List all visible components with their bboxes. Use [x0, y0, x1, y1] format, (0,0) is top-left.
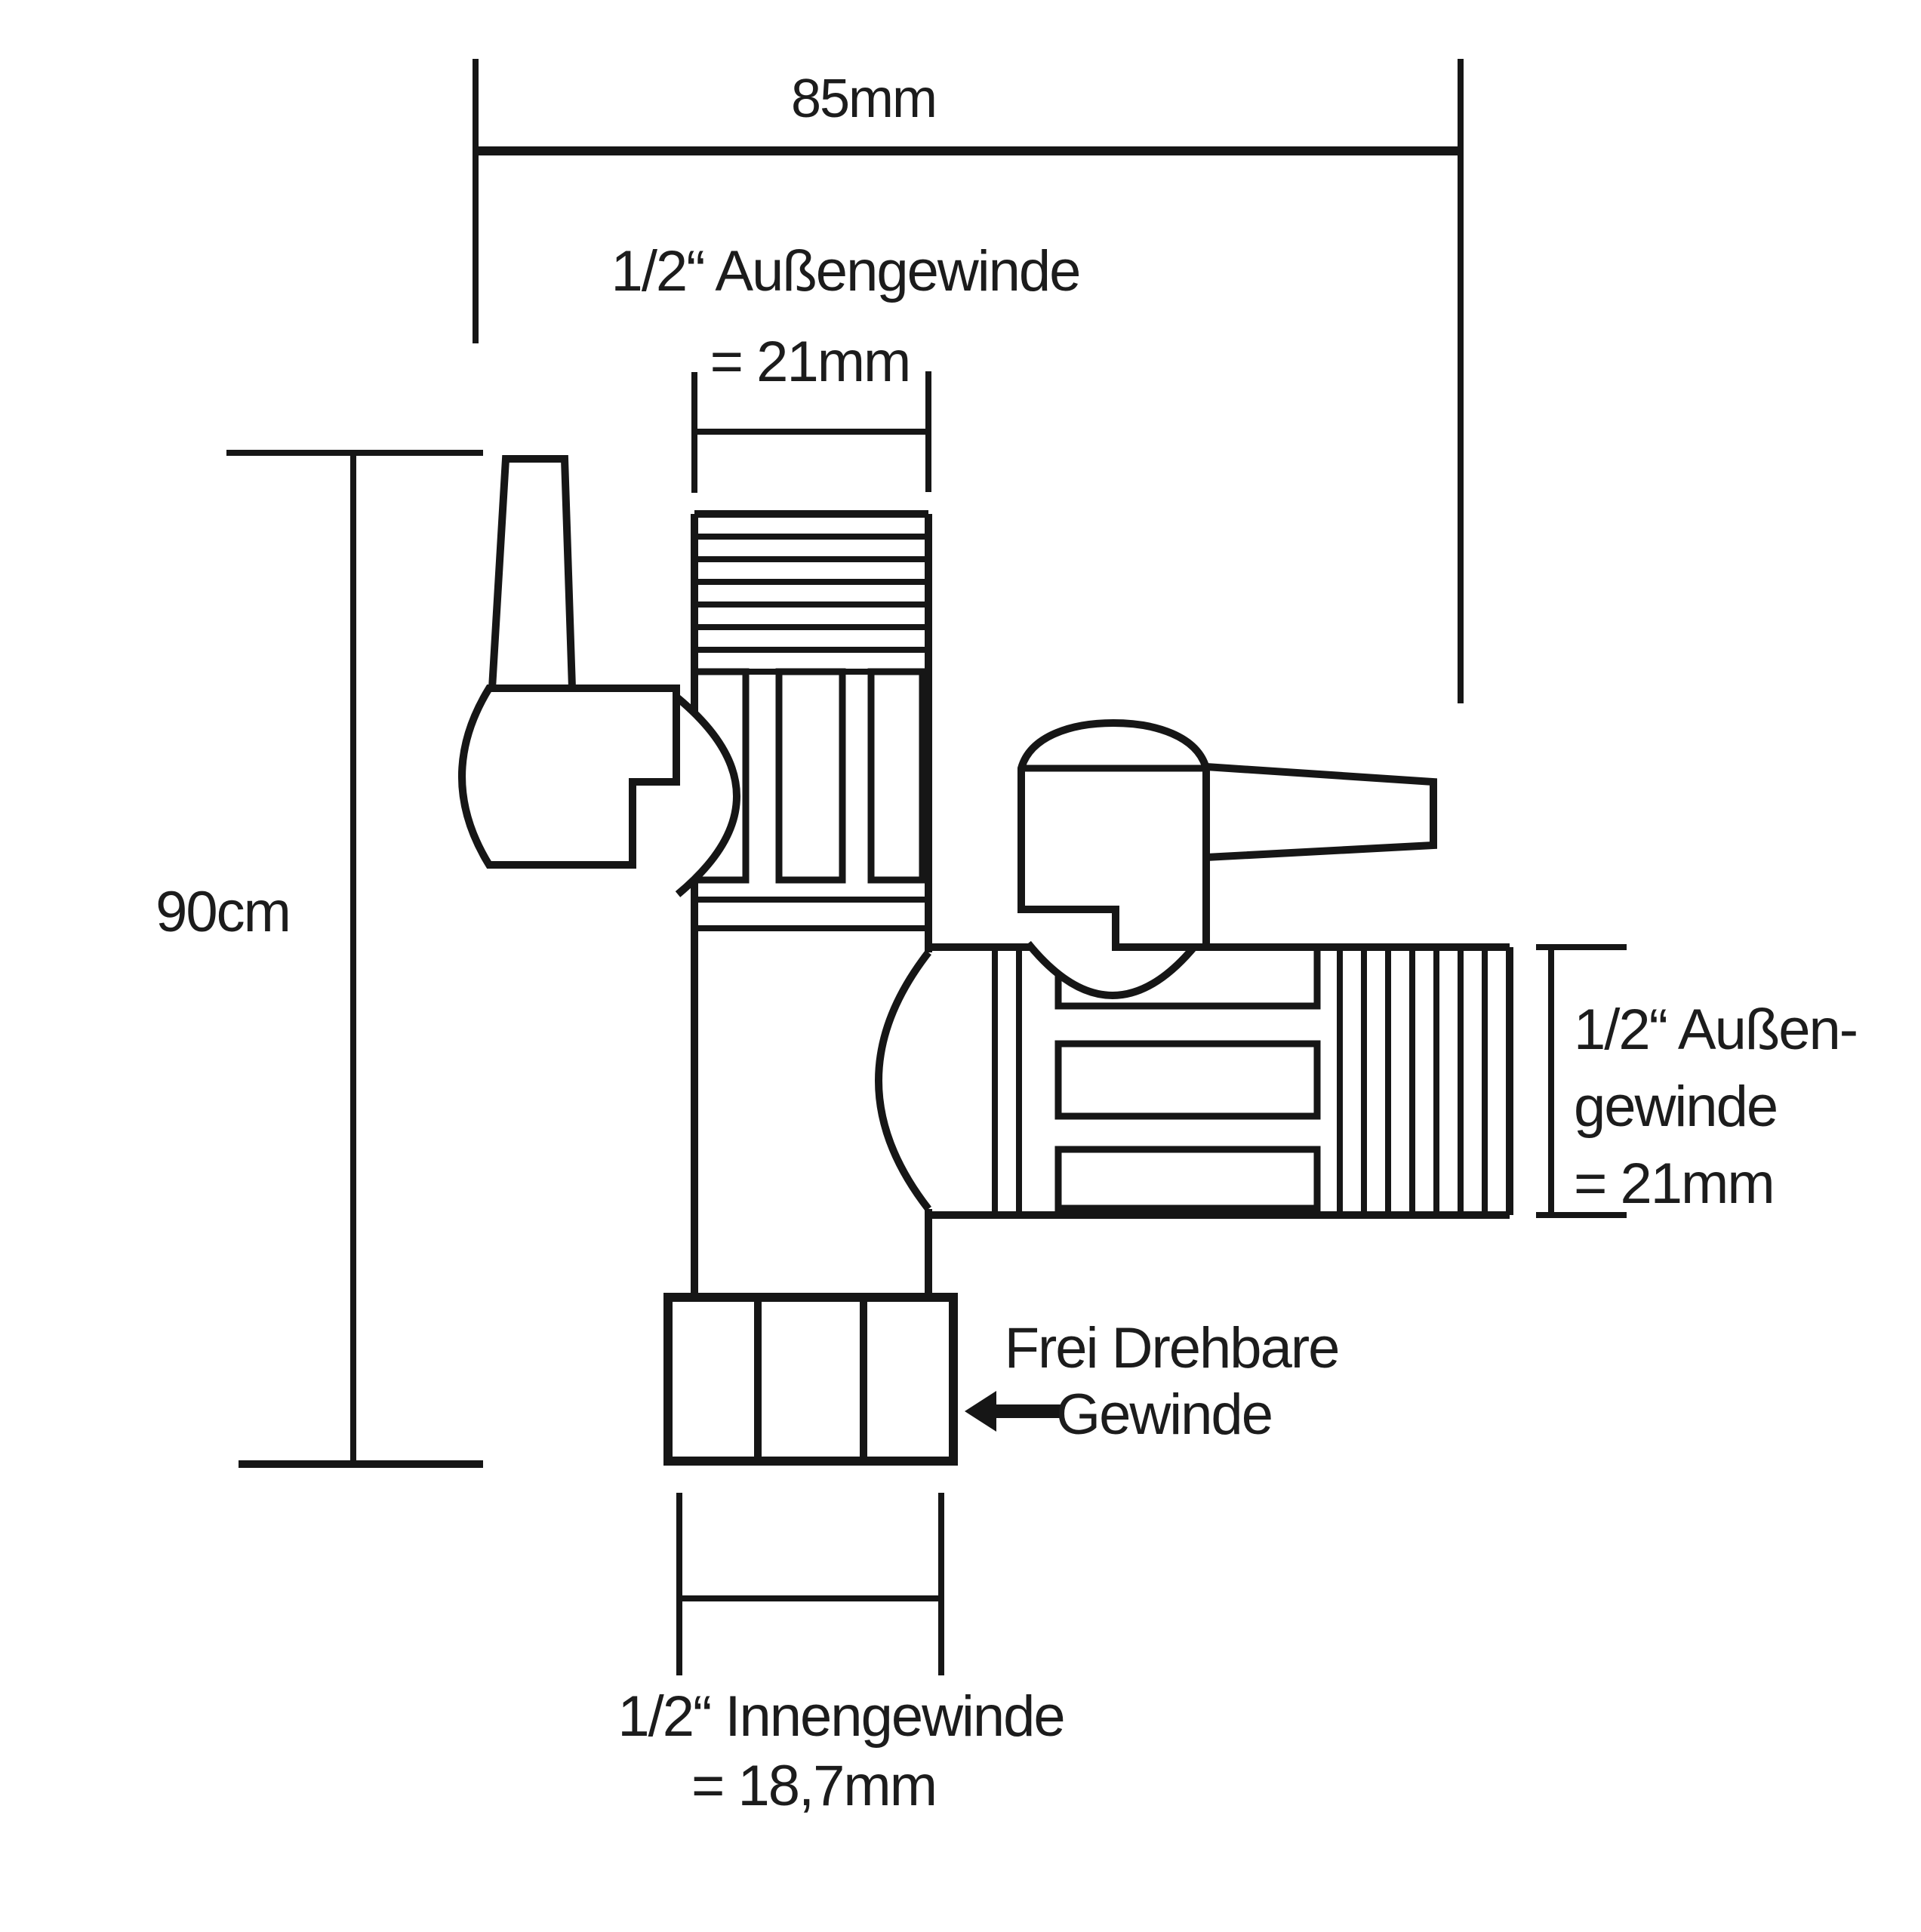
right-handle-cap [1021, 723, 1206, 947]
valve-body [668, 514, 953, 1461]
left-handle-cap [462, 688, 676, 865]
nut-outline [668, 1297, 953, 1461]
label-right-thread-line3: = 21mm [1574, 1152, 1774, 1216]
left-handle-lever [492, 459, 572, 688]
valve-branch [879, 947, 1510, 1215]
dim-85mm-label: 85mm [791, 69, 936, 129]
label-swivel-line2: Gewinde [1056, 1383, 1272, 1447]
label-top-thread-line1: 1/2“ Außengewinde [611, 239, 1080, 303]
label-swivel-line1: Frei Drehbare [1005, 1316, 1339, 1380]
dimension-90cm: 90cm [155, 453, 483, 1464]
slot [1058, 1044, 1317, 1116]
label-top-thread-line2: = 21mm [710, 330, 910, 394]
dimension-right-thread: 1/2“ Außen- gewinde = 21mm [1536, 947, 1857, 1216]
branch-thread-lines [1340, 947, 1485, 1215]
arrow-shaft [996, 1404, 1063, 1418]
right-handle [1021, 723, 1433, 995]
dim-90cm-label: 90cm [155, 880, 290, 944]
top-thread-lines [694, 537, 928, 672]
slot [779, 672, 842, 880]
technical-drawing-page: 85mm 1/2“ Außengewinde = 21mm 90cm [0, 0, 1921, 1932]
slot [871, 672, 922, 880]
valve-diagram: 85mm 1/2“ Außengewinde = 21mm 90cm [0, 0, 1921, 1932]
right-handle-lever [1206, 767, 1433, 857]
right-handle-hub [1028, 943, 1197, 995]
left-handle-hub [678, 698, 737, 894]
label-right-thread-line2: gewinde [1574, 1075, 1777, 1139]
label-right-thread-line1: 1/2“ Außen- [1574, 998, 1857, 1062]
label-bottom-thread-line1: 1/2“ Innengewinde [617, 1684, 1064, 1749]
branch-joint-arc [879, 952, 928, 1209]
dimension-bottom-thread: 1/2“ Innengewinde = 18,7mm [617, 1493, 1064, 1818]
label-top-thread: 1/2“ Außengewinde = 21mm [611, 239, 1080, 394]
slot [1058, 1149, 1317, 1208]
swivel-note: Frei Drehbare Gewinde [965, 1316, 1338, 1447]
union-nut [668, 1297, 953, 1461]
label-bottom-thread-line2: = 18,7mm [691, 1754, 936, 1818]
arrow-left-icon [965, 1391, 996, 1432]
dimension-85mm: 85mm [476, 59, 1461, 703]
